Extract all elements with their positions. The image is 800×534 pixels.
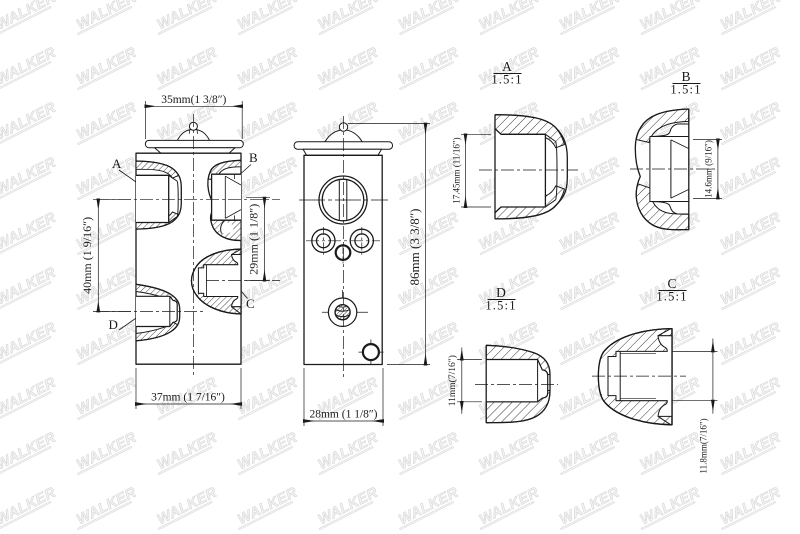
svg-text:1.5:1: 1.5:1 [485,299,516,313]
svg-text:11mm(7/16″): 11mm(7/16″) [447,355,458,406]
svg-text:28mm (1 1/8″): 28mm (1 1/8″) [309,409,377,421]
svg-text:B: B [249,150,258,165]
svg-text:1.5:1: 1.5:1 [670,83,701,97]
svg-text:37mm (1 7/16″): 37mm (1 7/16″) [151,392,225,404]
svg-text:35mm(1 3/8″): 35mm(1 3/8″) [161,94,226,106]
svg-text:11.8mm(7/16″): 11.8mm(7/16″) [699,418,709,473]
svg-text:A: A [112,156,122,171]
svg-text:1.5:1: 1.5:1 [656,290,687,304]
svg-text:40mm (1 9/16″): 40mm (1 9/16″) [80,217,94,294]
svg-text:17.45mm (11/16″): 17.45mm (11/16″) [452,137,462,203]
svg-text:D: D [109,317,118,332]
svg-text:1.5:1: 1.5:1 [491,73,522,87]
svg-text:29mm (1 1/8″): 29mm (1 1/8″) [247,204,261,275]
svg-text:86mm (3 3/8″): 86mm (3 3/8″) [407,209,422,286]
